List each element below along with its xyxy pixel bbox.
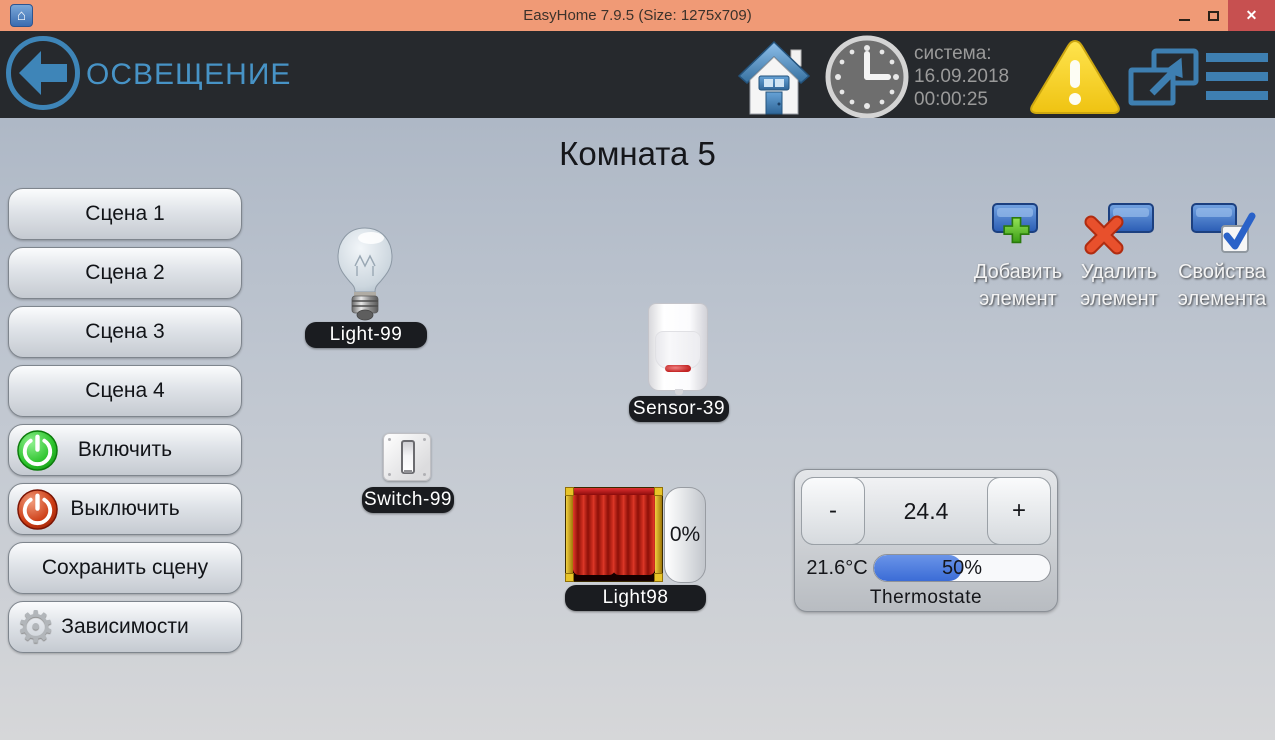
home-icon[interactable]: [737, 40, 811, 116]
scene-3-button[interactable]: Сцена 3: [8, 306, 242, 358]
curtain-icon[interactable]: [565, 487, 663, 582]
window-controls: ✕: [1170, 0, 1275, 31]
scene-1-button[interactable]: Сцена 1: [8, 188, 242, 240]
delete-element-icon: [1083, 200, 1155, 256]
menu-button[interactable]: [1206, 53, 1268, 110]
open-external-icon[interactable]: [1128, 48, 1200, 106]
page-title: ОСВЕЩЕНИЕ: [86, 31, 291, 118]
system-date: 16.09.2018: [914, 65, 1009, 88]
scene-4-button[interactable]: Сцена 4: [8, 365, 242, 417]
delete-element-button[interactable]: Удалить элемент: [1072, 200, 1166, 313]
curtain-level-slider[interactable]: 0%: [664, 487, 706, 583]
system-time: 00:00:25: [914, 88, 1009, 111]
app-window: ⌂ EasyHome 7.9.5 (Size: 1275x709) ✕ ОСВЕ…: [0, 0, 1275, 740]
clock-icon[interactable]: [824, 34, 910, 120]
switch99-label[interactable]: Switch-99: [362, 487, 454, 513]
thermostat-plus-button[interactable]: +: [987, 477, 1051, 545]
menu-icon: [1206, 53, 1268, 62]
sensor39-label[interactable]: Sensor-39: [629, 396, 729, 422]
motion-sensor-icon[interactable]: [648, 303, 708, 391]
turn-on-button[interactable]: Включить: [8, 424, 242, 476]
power-off-icon: [16, 488, 59, 531]
system-clock: система: 16.09.2018 00:00:25: [914, 42, 1009, 111]
save-scene-button[interactable]: Сохранить сцену: [8, 542, 242, 594]
dependencies-button[interactable]: ⚙ Зависимости: [8, 601, 242, 653]
back-arrow-icon: [17, 47, 69, 99]
close-button[interactable]: ✕: [1228, 0, 1275, 31]
element-properties-button[interactable]: Свойства элемента: [1172, 200, 1272, 313]
window-title: EasyHome 7.9.5 (Size: 1275x709): [0, 0, 1275, 31]
titlebar: ⌂ EasyHome 7.9.5 (Size: 1275x709) ✕: [0, 0, 1275, 31]
wall-switch-icon[interactable]: [383, 433, 431, 481]
sensor-led: [665, 365, 691, 372]
room-title: Комната 5: [0, 135, 1275, 173]
power-on-icon: [16, 429, 59, 472]
maximize-icon: [1208, 11, 1219, 21]
thermostat-minus-button[interactable]: -: [801, 477, 865, 545]
gear-icon: ⚙: [16, 606, 59, 649]
minimize-button[interactable]: [1170, 0, 1199, 31]
room-canvas: Комната 5 Сцена 1 Сцена 2 Сцена 3 Сцена …: [0, 118, 1275, 740]
thermostat-panel[interactable]: - 24.4 + 21.6°C 50% Thermostate: [794, 469, 1058, 612]
back-button[interactable]: [6, 36, 80, 110]
add-element-button[interactable]: Добавить элемент: [966, 200, 1070, 313]
maximize-button[interactable]: [1199, 0, 1228, 31]
add-element-icon: [985, 200, 1051, 256]
light98-label[interactable]: Light98: [565, 585, 706, 611]
warning-icon[interactable]: [1028, 38, 1122, 116]
element-properties-icon: [1188, 200, 1256, 256]
thermostat-progress-value: 50%: [874, 555, 1050, 581]
thermostat-setpoint: 24.4: [865, 478, 987, 544]
thermostat-setpoint-group: - 24.4 +: [801, 477, 1051, 545]
light-bulb-icon[interactable]: [333, 226, 397, 322]
thermostat-current-temp: 21.6°C: [801, 557, 873, 580]
thermostat-label: Thermostate: [801, 587, 1051, 609]
scene-2-button[interactable]: Сцена 2: [8, 247, 242, 299]
light99-label[interactable]: Light-99: [305, 322, 427, 348]
minimize-icon: [1179, 19, 1190, 21]
turn-off-button[interactable]: Выключить: [8, 483, 242, 535]
header: ОСВЕЩЕНИЕ: [0, 31, 1275, 118]
system-label: система:: [914, 42, 1009, 65]
thermostat-progress-bar[interactable]: 50%: [873, 554, 1051, 582]
